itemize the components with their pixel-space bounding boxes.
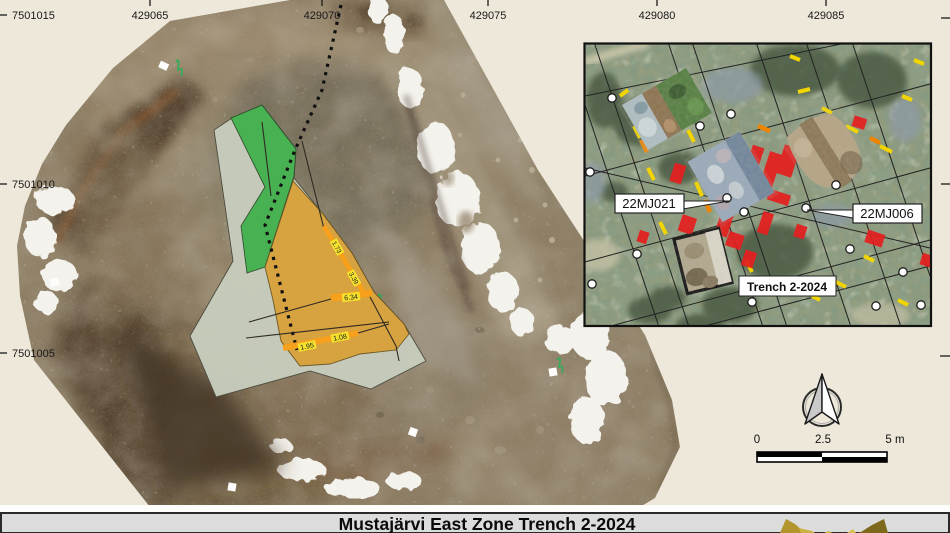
svg-text:0: 0 [754,434,760,446]
svg-text:7501010: 7501010 [12,179,55,191]
svg-text:Mustajärvi East Zone Trench 2-: Mustajärvi East Zone Trench 2-2024 [339,514,636,533]
svg-text:7501005: 7501005 [12,348,55,360]
svg-text:429075: 429075 [470,10,507,22]
svg-text:429080: 429080 [639,10,676,22]
svg-text:5 m: 5 m [885,434,904,446]
svg-text:7501015: 7501015 [12,10,55,22]
svg-text:429065: 429065 [132,10,169,22]
svg-text:22MJ021: 22MJ021 [622,196,675,211]
svg-text:22MJ006: 22MJ006 [860,206,913,221]
svg-text:2.5: 2.5 [815,434,831,446]
svg-text:429085: 429085 [808,10,845,22]
svg-text:Trench 2-2024: Trench 2-2024 [747,280,827,294]
svg-text:429070: 429070 [304,10,341,22]
